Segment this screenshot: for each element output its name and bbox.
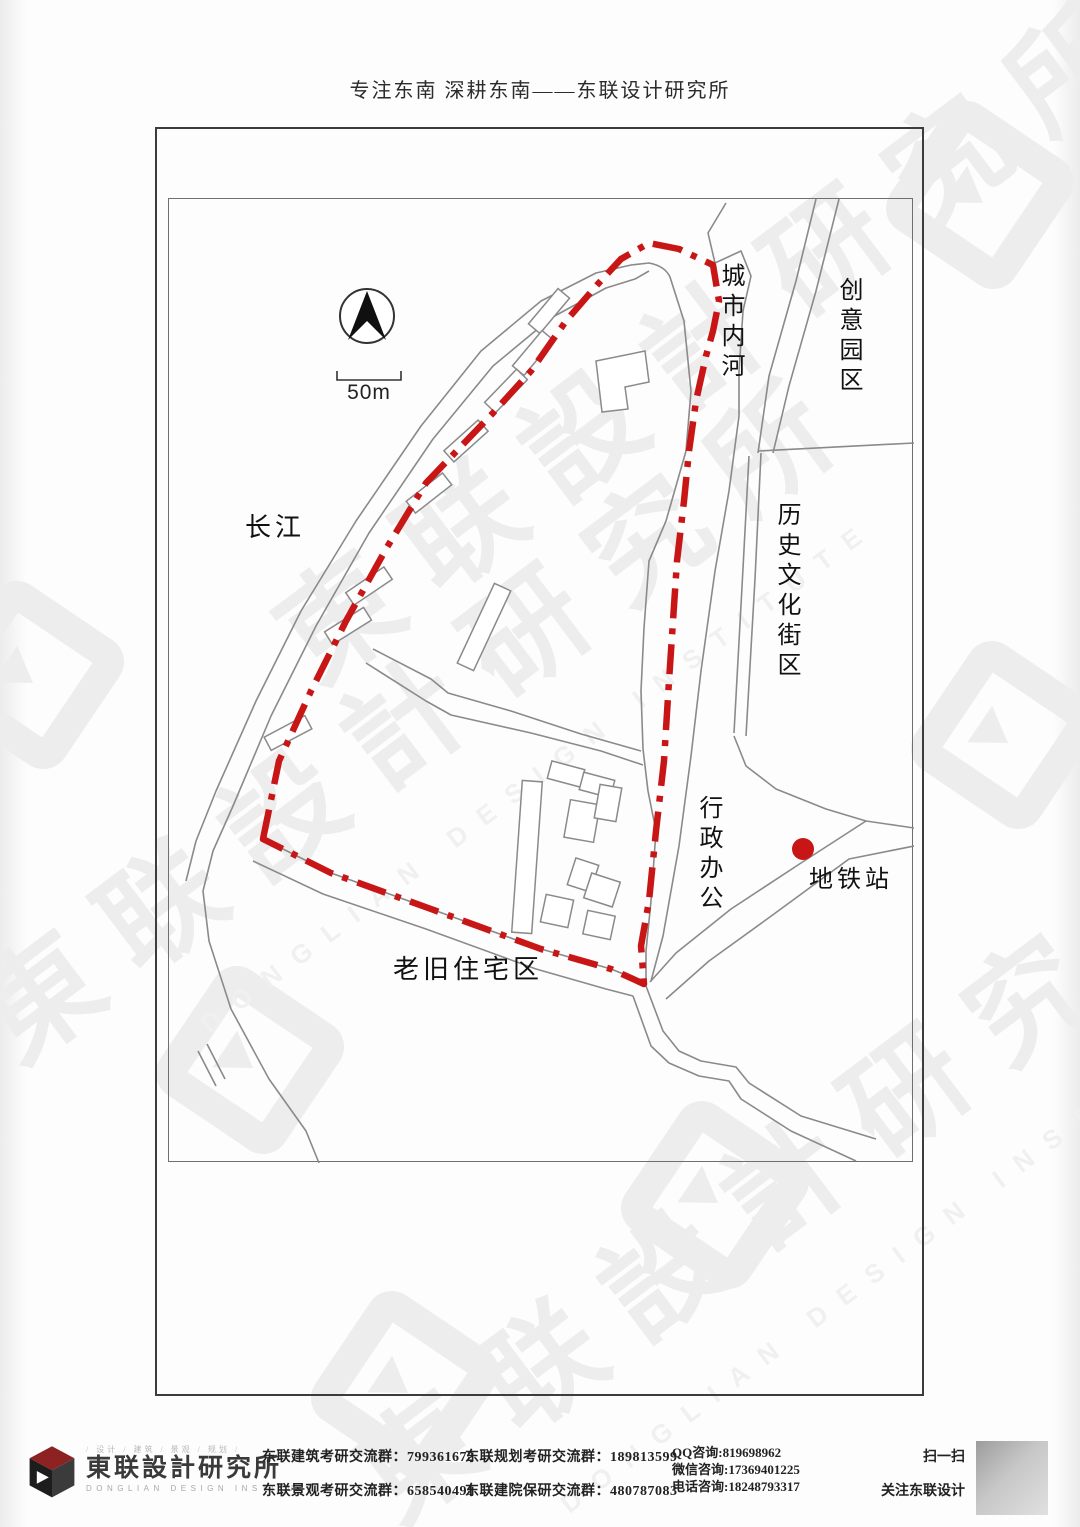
qr-caption-scan: 扫一扫	[880, 1446, 965, 1466]
label-historic-district: 历史文化街区	[769, 502, 804, 682]
scale-bar	[337, 371, 401, 380]
qq-group-label: 东联规划考研交流群：	[465, 1450, 610, 1465]
cube-logo-icon	[28, 1444, 76, 1506]
contact-number: 17369401225	[728, 1462, 800, 1477]
historic-district-roads	[734, 453, 914, 828]
page-title: 专注东南 深耕东南——东联设计研究所	[0, 74, 1080, 103]
label-metro-station: 地铁站	[809, 859, 893, 894]
middle-road	[366, 649, 643, 765]
buildings	[457, 351, 649, 940]
qr-caption-follow: 关注东联设计	[855, 1480, 965, 1500]
qq-groups-column-1: 东联建筑考研交流群：799361672 东联景观考研交流群：658540491	[262, 1446, 475, 1514]
metro-station-dot	[792, 838, 814, 860]
metro-road	[650, 821, 914, 999]
contact-line: 微信咨询:17369401225	[672, 1461, 800, 1478]
qq-group-number: 480787083	[610, 1484, 678, 1499]
label-city-river: 城市内河	[713, 263, 748, 383]
footer: / 设计 / 建筑 / 景观 / 规划 / 東联設計研究所 DONGLIAN D…	[0, 1428, 1080, 1527]
qq-group-label: 东联景观考研交流群：	[262, 1484, 407, 1499]
bottom-right-road	[633, 986, 876, 1161]
contact-label: QQ咨询:	[672, 1445, 723, 1460]
qq-group-number: 189813599	[610, 1450, 678, 1465]
qq-groups-column-2: 东联规划考研交流群：189813599 东联建院保研交流群：480787083	[465, 1446, 678, 1514]
contact-label: 微信咨询:	[672, 1462, 728, 1477]
qq-group-item: 东联建院保研交流群：480787083	[465, 1480, 678, 1500]
qq-group-label: 东联建筑考研交流群：	[262, 1450, 407, 1465]
scale-label: 50m	[329, 381, 409, 405]
site-map: 长江 城市内河 创意园区 历史文化街区 行政办公 地铁站 老旧住宅区 50m	[168, 198, 913, 1162]
contact-number: 18248793317	[728, 1479, 800, 1494]
watermark-cube-icon	[901, 631, 1080, 839]
contact-number: 819698962	[723, 1445, 782, 1460]
label-admin-office: 行政办公	[691, 795, 726, 915]
qr-code	[976, 1441, 1048, 1515]
north-compass-icon	[340, 289, 394, 343]
qq-group-item: 东联建筑考研交流群：799361672	[262, 1446, 475, 1466]
qq-group-item: 东联景观考研交流群：658540491	[262, 1480, 475, 1500]
contact-line: QQ咨询:819698962	[672, 1444, 800, 1461]
label-old-residential: 老旧住宅区	[393, 949, 543, 986]
contact-block: QQ咨询:819698962 微信咨询:17369401225 电话咨询:182…	[672, 1444, 800, 1495]
pier-buildings	[264, 289, 569, 751]
watermark-cube-icon	[0, 571, 134, 779]
label-yangtze: 长江	[245, 507, 305, 544]
qq-group-item: 东联规划考研交流群：189813599	[465, 1446, 678, 1466]
qq-group-label: 东联建院保研交流群：	[465, 1484, 610, 1499]
contact-line: 电话咨询:18248793317	[672, 1478, 800, 1495]
contact-label: 电话咨询:	[672, 1479, 728, 1494]
label-creative-park: 创意园区	[831, 277, 866, 397]
